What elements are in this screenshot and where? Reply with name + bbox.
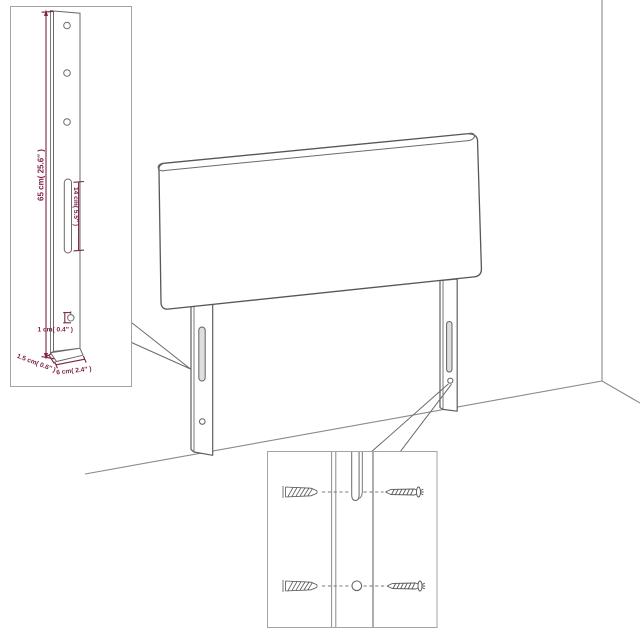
left-leg-slot bbox=[199, 327, 205, 381]
callout-lines-leg-detail bbox=[132, 323, 191, 370]
left-leg bbox=[191, 303, 213, 455]
callout-line bbox=[372, 384, 449, 452]
diagram-canvas: 65 cm( 25.6″ ) 14 cm( 5.5″ ) 1 cm( 0.4″ … bbox=[0, 0, 640, 640]
screw-head bbox=[418, 581, 422, 591]
mounting-detail-inset bbox=[268, 452, 438, 628]
post-hole bbox=[64, 70, 71, 77]
post-hole bbox=[64, 22, 71, 29]
callout-line bbox=[132, 343, 191, 370]
headboard bbox=[158, 133, 481, 309]
post-keyhole bbox=[68, 315, 74, 321]
post-slot bbox=[64, 179, 71, 253]
right-leg-screw-hole bbox=[448, 378, 453, 383]
floor-line-right bbox=[602, 381, 640, 403]
post-hole bbox=[64, 119, 71, 126]
callout-line bbox=[401, 384, 452, 451]
left-leg-screw-hole bbox=[200, 419, 206, 425]
mounting-detail-inset-border bbox=[268, 452, 438, 628]
screw-head bbox=[417, 487, 421, 497]
dimension-label-slot-length: 14 cm( 5.5″ ) bbox=[72, 187, 79, 226]
right-leg-slot bbox=[447, 322, 452, 373]
headboard-panel bbox=[159, 134, 482, 309]
dimension-label-leg-height: 65 cm( 25.6″ ) bbox=[37, 149, 46, 201]
leg-detail-inset: 65 cm( 25.6″ ) 14 cm( 5.5″ ) 1 cm( 0.4″ … bbox=[11, 7, 132, 387]
headboard-product-diagram: 65 cm( 25.6″ ) 14 cm( 5.5″ ) 1 cm( 0.4″ … bbox=[0, 0, 640, 640]
dimension-label-hole-size: 1 cm( 0.4″ ) bbox=[38, 327, 73, 334]
right-leg bbox=[440, 279, 457, 411]
hole-closeup bbox=[352, 581, 362, 591]
callout-line bbox=[132, 323, 191, 370]
